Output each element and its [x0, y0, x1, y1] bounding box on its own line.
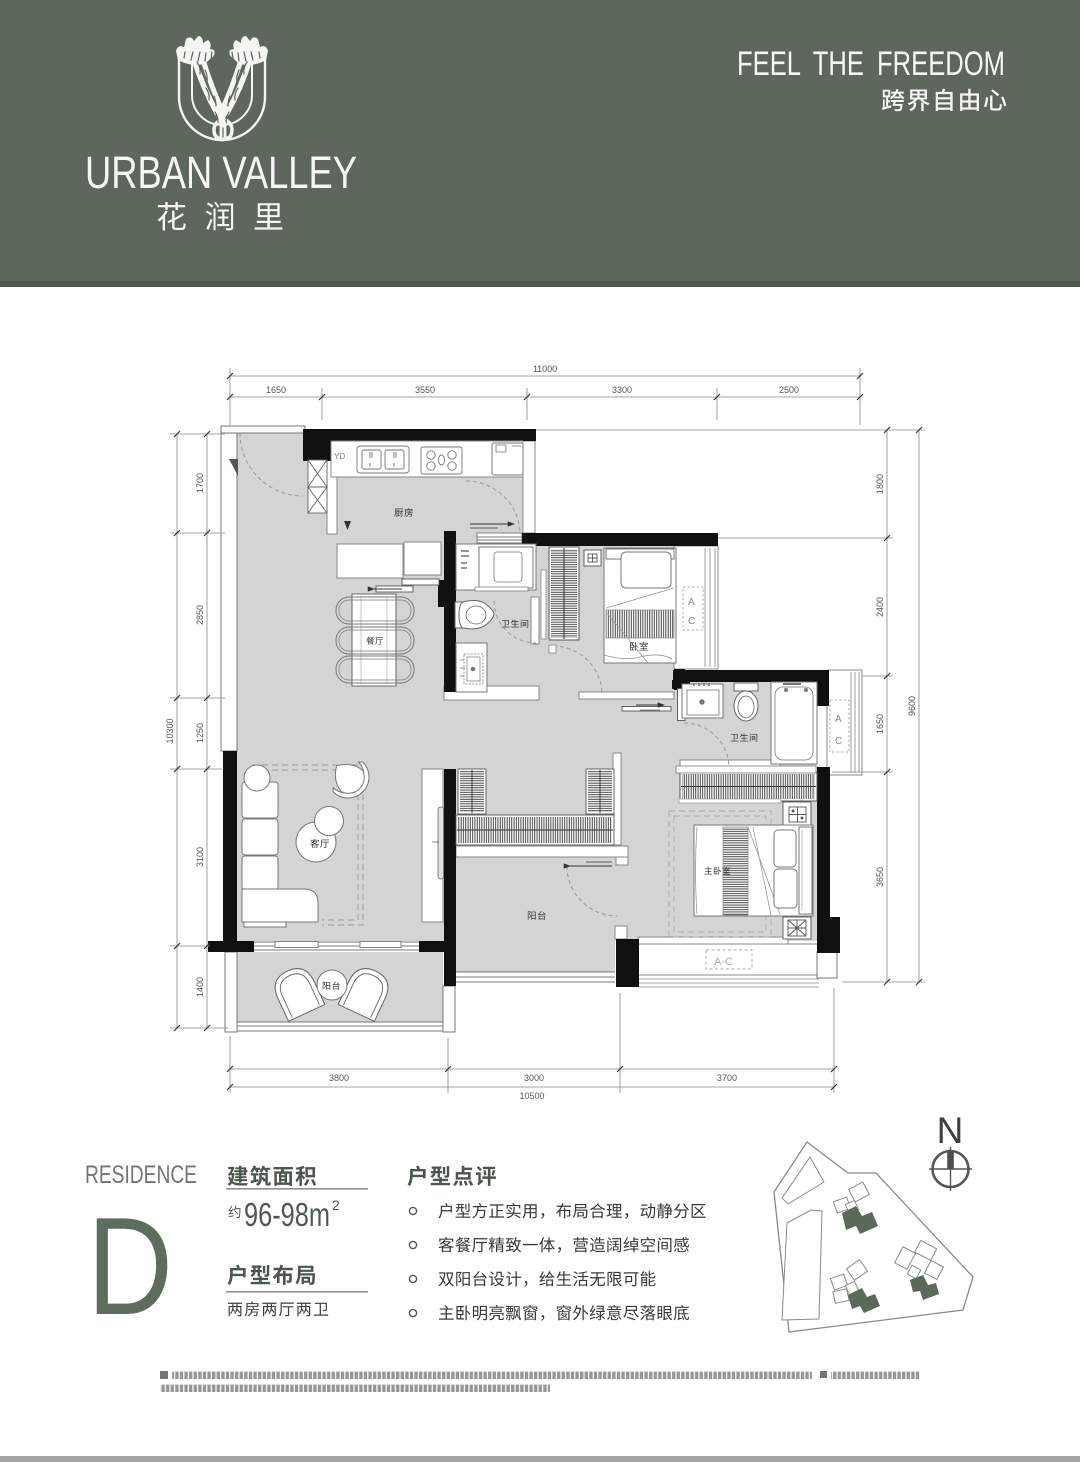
svg-text:1650: 1650 [266, 385, 286, 395]
svg-text:D: D [87, 1189, 173, 1344]
svg-text:10500: 10500 [519, 1091, 544, 1101]
svg-text:10300: 10300 [165, 718, 175, 743]
svg-text:3650: 3650 [875, 867, 885, 887]
svg-text:1250: 1250 [195, 723, 205, 743]
svg-text:FEEL THE FREEDOM: FEEL THE FREEDOM [737, 45, 1005, 83]
svg-text:C: C [688, 616, 695, 627]
svg-text:11000: 11000 [533, 364, 557, 374]
svg-text:YD: YD [334, 452, 345, 461]
svg-text:1800: 1800 [875, 474, 885, 494]
svg-text:3100: 3100 [195, 847, 205, 867]
svg-text:N: N [937, 1110, 964, 1151]
svg-text:RESIDENCE: RESIDENCE [85, 1161, 197, 1189]
svg-text:2500: 2500 [779, 385, 799, 395]
svg-text:9600: 9600 [907, 696, 917, 716]
svg-text:2: 2 [332, 1197, 340, 1213]
svg-text:3800: 3800 [329, 1073, 349, 1083]
svg-text:96-98m: 96-98m [244, 1196, 330, 1233]
svg-text:3700: 3700 [717, 1073, 737, 1083]
svg-text:URBAN VALLEY: URBAN VALLEY [85, 147, 357, 198]
svg-text:3300: 3300 [612, 385, 632, 395]
svg-text:A: A [835, 714, 842, 725]
svg-text:3550: 3550 [415, 385, 435, 395]
svg-text:A-C: A-C [714, 956, 733, 968]
svg-text:3000: 3000 [524, 1073, 544, 1083]
svg-text:1400: 1400 [195, 977, 205, 997]
svg-text:1700: 1700 [195, 473, 205, 493]
svg-text:2400: 2400 [875, 597, 885, 617]
svg-text:2850: 2850 [195, 605, 205, 625]
svg-text:1650: 1650 [875, 714, 885, 734]
svg-text:C: C [835, 736, 842, 747]
svg-text:A: A [688, 597, 695, 608]
